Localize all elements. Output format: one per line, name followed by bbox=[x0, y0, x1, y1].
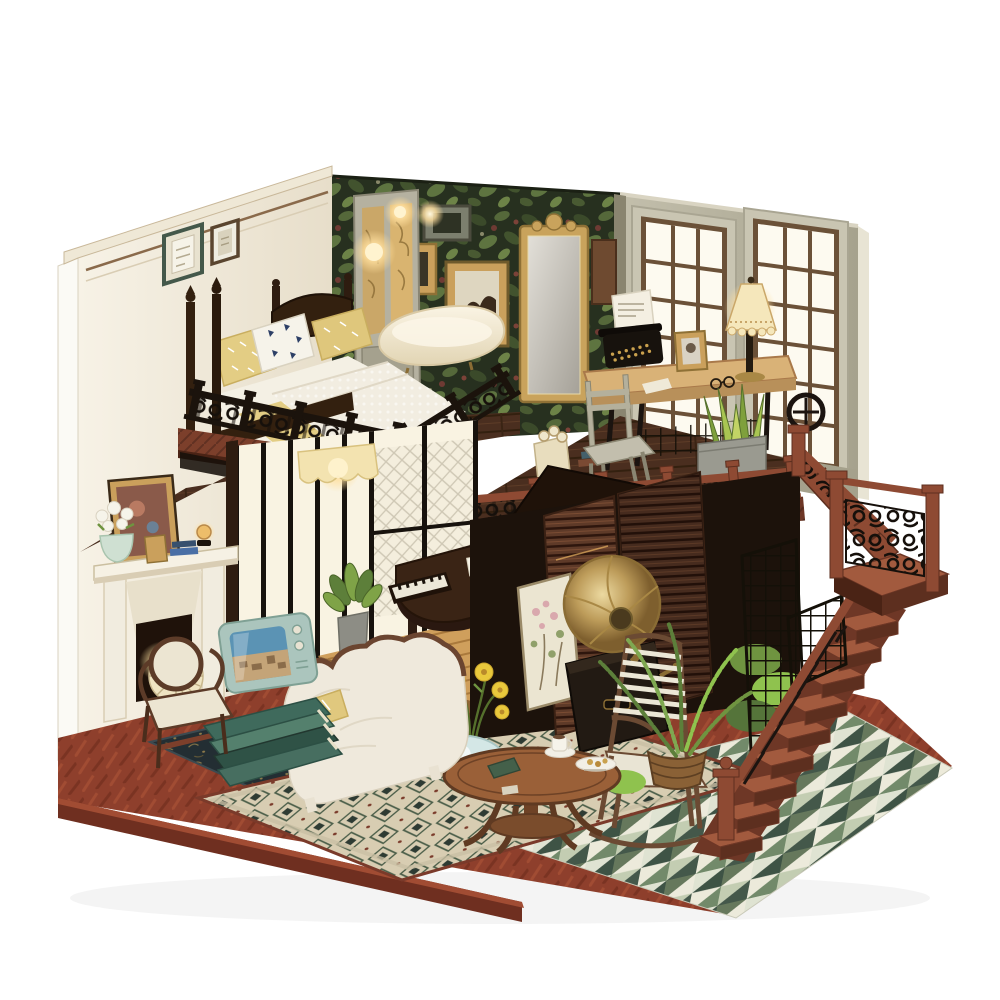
desk-photo-frame bbox=[675, 331, 708, 371]
wall-art bbox=[164, 224, 202, 284]
product-photo: DIY miniature dollhouse kit — two-story … bbox=[0, 0, 1000, 1000]
mini-frame bbox=[145, 535, 168, 563]
dollhouse-illustration: DIY miniature dollhouse kit — two-story … bbox=[0, 0, 1000, 1000]
gilt-mirror bbox=[520, 214, 588, 402]
wall-art bbox=[212, 220, 238, 264]
retro-tv bbox=[218, 612, 319, 694]
awning-glow-core bbox=[328, 458, 348, 478]
bulb-glow bbox=[416, 200, 444, 228]
dollhouse-photo: DIY miniature dollhouse kit — two-story … bbox=[0, 0, 1000, 1000]
